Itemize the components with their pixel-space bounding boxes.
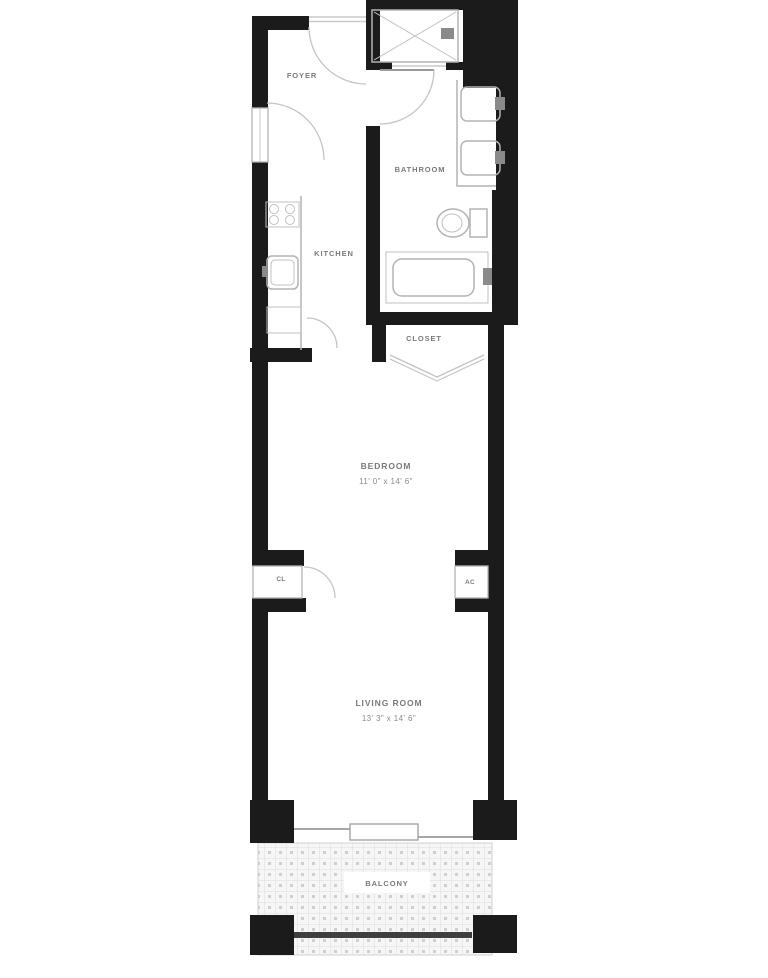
wall-ac-stub-top xyxy=(455,550,504,566)
entry-door-arc xyxy=(309,27,366,84)
wall-block-top-right xyxy=(463,0,518,88)
balcony-slider xyxy=(294,824,473,840)
cl-label: CL xyxy=(276,576,285,583)
hall-door-arc xyxy=(307,318,337,348)
bedroom-dimensions: 11' 0" x 14' 6" xyxy=(359,477,413,486)
toilet-tank xyxy=(470,209,487,237)
balcony-post-right xyxy=(473,915,517,953)
closet-label: CLOSET xyxy=(406,334,442,343)
ac-label: AC xyxy=(465,579,475,586)
corner-block-left xyxy=(250,800,294,843)
vanity-counter xyxy=(457,80,496,186)
wall-top-right xyxy=(366,0,518,10)
tub-faucet-icon xyxy=(483,268,492,285)
burner-icon xyxy=(270,205,279,214)
foyer-label: FOYER xyxy=(287,71,317,80)
living-room-label: LIVING ROOM xyxy=(355,698,422,708)
wall-left-upper xyxy=(252,16,268,108)
living-room-dimensions: 13' 3" x 14' 6" xyxy=(362,714,416,723)
sliding-door-panel xyxy=(350,824,418,840)
shower-head xyxy=(441,28,454,39)
wall-right-bath xyxy=(492,190,518,325)
balcony-label: BALCONY xyxy=(365,879,408,888)
kitchen-sink xyxy=(267,256,298,289)
kitchen-faucet-icon xyxy=(262,266,268,277)
bathroom-label: BATHROOM xyxy=(395,165,446,174)
vanity-sink-top xyxy=(461,87,500,121)
wall-left-living xyxy=(252,598,268,815)
wall-bath-left xyxy=(366,126,380,325)
burner-icon xyxy=(270,216,279,225)
faucet-icon xyxy=(495,151,505,164)
wall-bath-bottom xyxy=(366,312,504,325)
bathroom-door-arc xyxy=(380,70,434,124)
burner-icon xyxy=(286,216,295,225)
kitchen-label: KITCHEN xyxy=(314,249,354,258)
burner-icon xyxy=(286,205,295,214)
wall-ac-stub-bottom xyxy=(455,598,504,612)
wall-kitchen-bottom xyxy=(250,348,312,362)
vanity-sink-bottom xyxy=(461,141,500,175)
wall-shower-stub-left xyxy=(380,62,392,70)
floor-plan-page: FOYER BATHROOM KITCHEN CLOSET BEDROOM 11… xyxy=(0,0,768,978)
balcony-railing xyxy=(294,932,472,938)
cl-door-arc xyxy=(304,567,335,598)
balcony-post-left xyxy=(250,915,294,955)
foyer-closet-door-arc xyxy=(267,103,324,160)
wall-cl-stub-top xyxy=(252,550,304,566)
wall-shower-stub-right xyxy=(446,62,463,70)
bedroom-label: BEDROOM xyxy=(361,461,412,471)
wall-right-lower xyxy=(488,325,504,815)
kitchen-cabinet xyxy=(267,307,301,333)
floor-plan: FOYER BATHROOM KITCHEN CLOSET BEDROOM 11… xyxy=(0,0,768,978)
wall-cl-stub-bottom xyxy=(268,598,306,612)
faucet-icon xyxy=(495,97,505,110)
